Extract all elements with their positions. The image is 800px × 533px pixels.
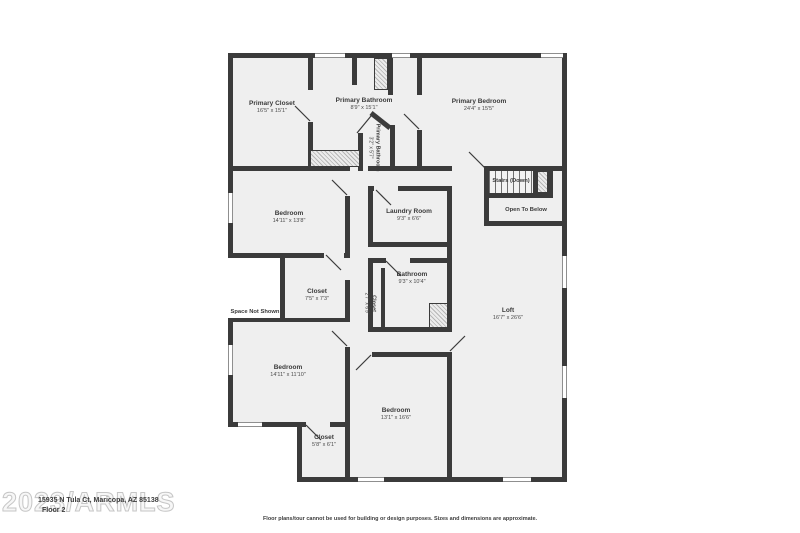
room-label-primary-bathroom-small: Primary Bathroom 3'2" x 5'7" (352, 128, 396, 168)
wall (308, 55, 313, 90)
room-dims: 3'2" x 5'7" (367, 124, 373, 172)
room-name: Closet (287, 288, 347, 296)
room-label-loft: Loft 16'7" x 26'6" (463, 307, 553, 322)
room-dims: 7'5" x 7'3" (287, 296, 347, 303)
room-dims: 5'8" x 6'1" (294, 442, 354, 449)
rotated-label: Primary Bathroom 3'2" x 5'7" (367, 124, 380, 172)
window (315, 53, 345, 58)
window (228, 345, 233, 375)
wall (484, 193, 553, 198)
room-name: Bedroom (244, 210, 334, 218)
room-name: Open To Below (486, 207, 566, 215)
room-label-bedroom-mid: Bedroom 14'11" x 13'8" (244, 210, 334, 225)
wall (345, 196, 350, 258)
room-label-bedroom-bottom: Bedroom 13'1" x 16'6" (351, 407, 441, 422)
floorplan-canvas: Primary Closet 16'5" x 15'1" Primary Bat… (0, 0, 800, 533)
wall (531, 477, 567, 482)
room-label-primary-bedroom: Primary Bedroom 24'4" x 15'5" (429, 98, 529, 113)
wall (384, 477, 503, 482)
room-name: Closet (369, 293, 376, 315)
room-dims: 2'7" x 6'9" (363, 293, 369, 315)
room-dims: 16'5" x 15'1" (227, 108, 317, 115)
wall (484, 221, 567, 226)
room-name: Bedroom (243, 364, 333, 372)
window (392, 53, 410, 58)
room-dims: 13'1" x 16'6" (351, 415, 441, 422)
wall (368, 242, 452, 247)
wall (417, 130, 422, 171)
room-name: Space Not Shown (222, 309, 288, 317)
window (358, 477, 384, 482)
label-space-not-shown: Space Not Shown (222, 309, 288, 317)
window (238, 422, 262, 427)
room-label-closet-mid: Closet 7'5" x 7'3" (287, 288, 347, 303)
wall (228, 53, 233, 258)
room-name: Primary Bathroom (319, 97, 409, 105)
property-address: 15935 N Tula Ct, Maricopa, AZ 85138 (38, 497, 159, 504)
wall (297, 477, 358, 482)
room-label-open-to-below: Open To Below (486, 207, 566, 215)
room-dims: 9'3" x 10'4" (380, 279, 444, 286)
room-label-closet-bottom: Closet 5'8" x 6'1" (294, 434, 354, 449)
floor-label: Floor 2 (42, 507, 65, 514)
window (541, 53, 563, 58)
room-label-closet-small: Closet 2'7" x 6'9" (356, 284, 384, 324)
room-name: Closet (294, 434, 354, 442)
wall (352, 55, 357, 85)
room-label-primary-closet: Primary Closet 16'5" x 15'1" (227, 100, 317, 115)
wall (228, 422, 238, 427)
wall (388, 55, 393, 95)
wall (228, 253, 324, 258)
wall (398, 186, 452, 191)
room-name: Primary Bathroom (373, 124, 380, 172)
room-label-bathroom: Bathroom 9'3" x 10'4" (380, 271, 444, 286)
room-name: Primary Bedroom (429, 98, 529, 106)
window (562, 366, 567, 398)
room-dims: 8'9" x 15'1" (319, 105, 409, 112)
rotated-label: Closet 2'7" x 6'9" (363, 293, 376, 315)
room-label-laundry: Laundry Room 9'3" x 6'6" (364, 208, 454, 223)
shower-hatch (429, 303, 448, 328)
room-label-primary-bathroom: Primary Bathroom 8'9" x 15'1" (319, 97, 409, 112)
wall (345, 347, 350, 425)
window (562, 256, 567, 288)
room-dims: 14'11" x 11'10" (243, 372, 333, 379)
room-dims: 16'7" x 26'6" (463, 315, 553, 322)
wall (228, 318, 348, 322)
wall (447, 352, 452, 482)
wall (330, 422, 348, 427)
room-label-bedroom-bottom-left: Bedroom 14'11" x 11'10" (243, 364, 333, 379)
window (503, 477, 531, 482)
room-name: Bathroom (380, 271, 444, 279)
room-dims: 24'4" x 15'5" (429, 106, 529, 113)
shower-hatch (374, 58, 388, 90)
room-name: Primary Closet (227, 100, 317, 108)
room-label-stairs: Stairs (Down) (472, 178, 550, 186)
room-name: Laundry Room (364, 208, 454, 216)
window (228, 193, 233, 223)
wall (410, 258, 452, 263)
wall (372, 352, 452, 357)
room-name: Loft (463, 307, 553, 315)
room-dims: 9'3" x 6'6" (364, 216, 454, 223)
room-dims: 14'11" x 13'8" (244, 218, 334, 225)
wall (345, 352, 350, 357)
wall (417, 55, 422, 95)
room-name: Stairs (Down) (472, 178, 550, 186)
room-name: Bedroom (351, 407, 441, 415)
